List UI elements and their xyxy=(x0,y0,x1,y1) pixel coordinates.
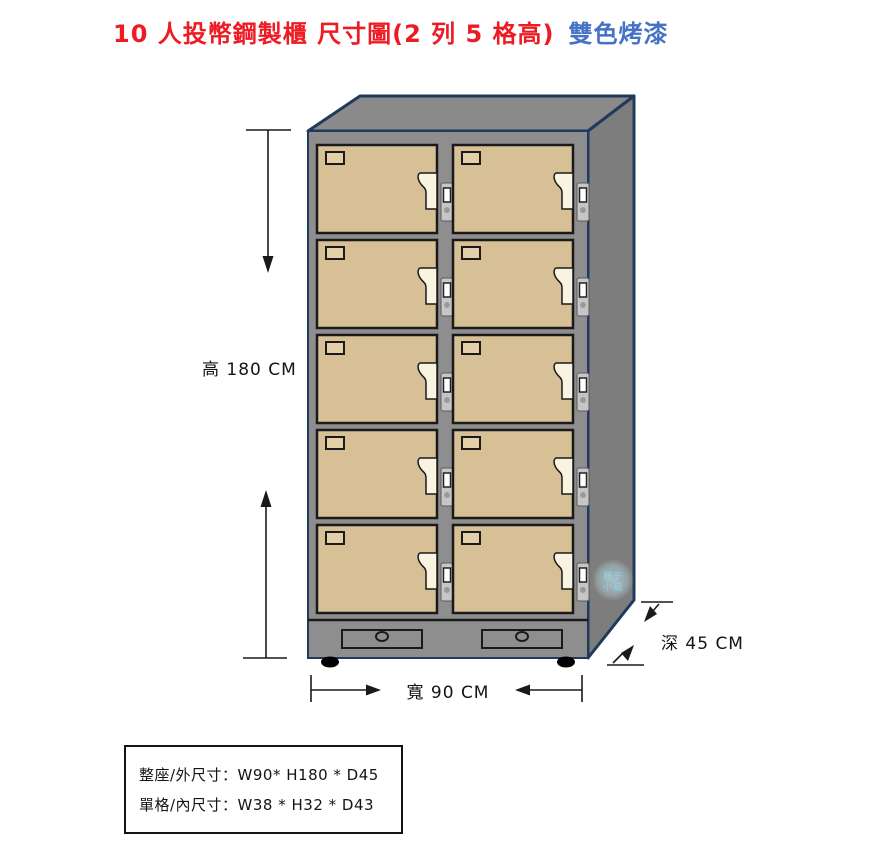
watermark-text-2: 小舖 xyxy=(603,581,623,593)
locker-door xyxy=(317,525,453,613)
height-dimension-label: 高 180 CM xyxy=(202,355,297,380)
cabinet-top-face xyxy=(308,96,634,131)
locker-door xyxy=(453,145,589,233)
height-dimension xyxy=(243,130,291,658)
locker-door xyxy=(317,145,453,233)
spec-box: 整座/外尺寸：W90* H180 * D45 單格/內尺寸：W38 * H32 … xyxy=(124,745,403,834)
spec-outer-dimensions: 整座/外尺寸：W90* H180 * D45 xyxy=(139,760,401,790)
foot-right xyxy=(557,657,575,668)
locker-cabinet-drawing: 櫃子 小舖 xyxy=(0,0,883,859)
locker-door xyxy=(453,525,589,613)
locker-door xyxy=(317,430,453,518)
depth-dimension-label: 深 45 CM xyxy=(661,629,744,654)
locker-door xyxy=(317,240,453,328)
locker-door xyxy=(453,430,589,518)
product-dimension-diagram: 10 人投幣鋼製櫃 尺寸圖(2 列 5 格高)雙色烤漆 xyxy=(0,0,883,859)
locker-door xyxy=(453,240,589,328)
watermark-text-1: 櫃子 xyxy=(603,570,623,582)
width-dimension-label: 寬 90 CM xyxy=(398,678,498,703)
watermark-badge: 櫃子 小舖 xyxy=(592,559,634,601)
locker-door xyxy=(453,335,589,423)
foot-left xyxy=(321,657,339,668)
locker-door xyxy=(317,335,453,423)
spec-inner-dimensions: 單格/內尺寸：W38 * H32 * D43 xyxy=(139,790,401,820)
